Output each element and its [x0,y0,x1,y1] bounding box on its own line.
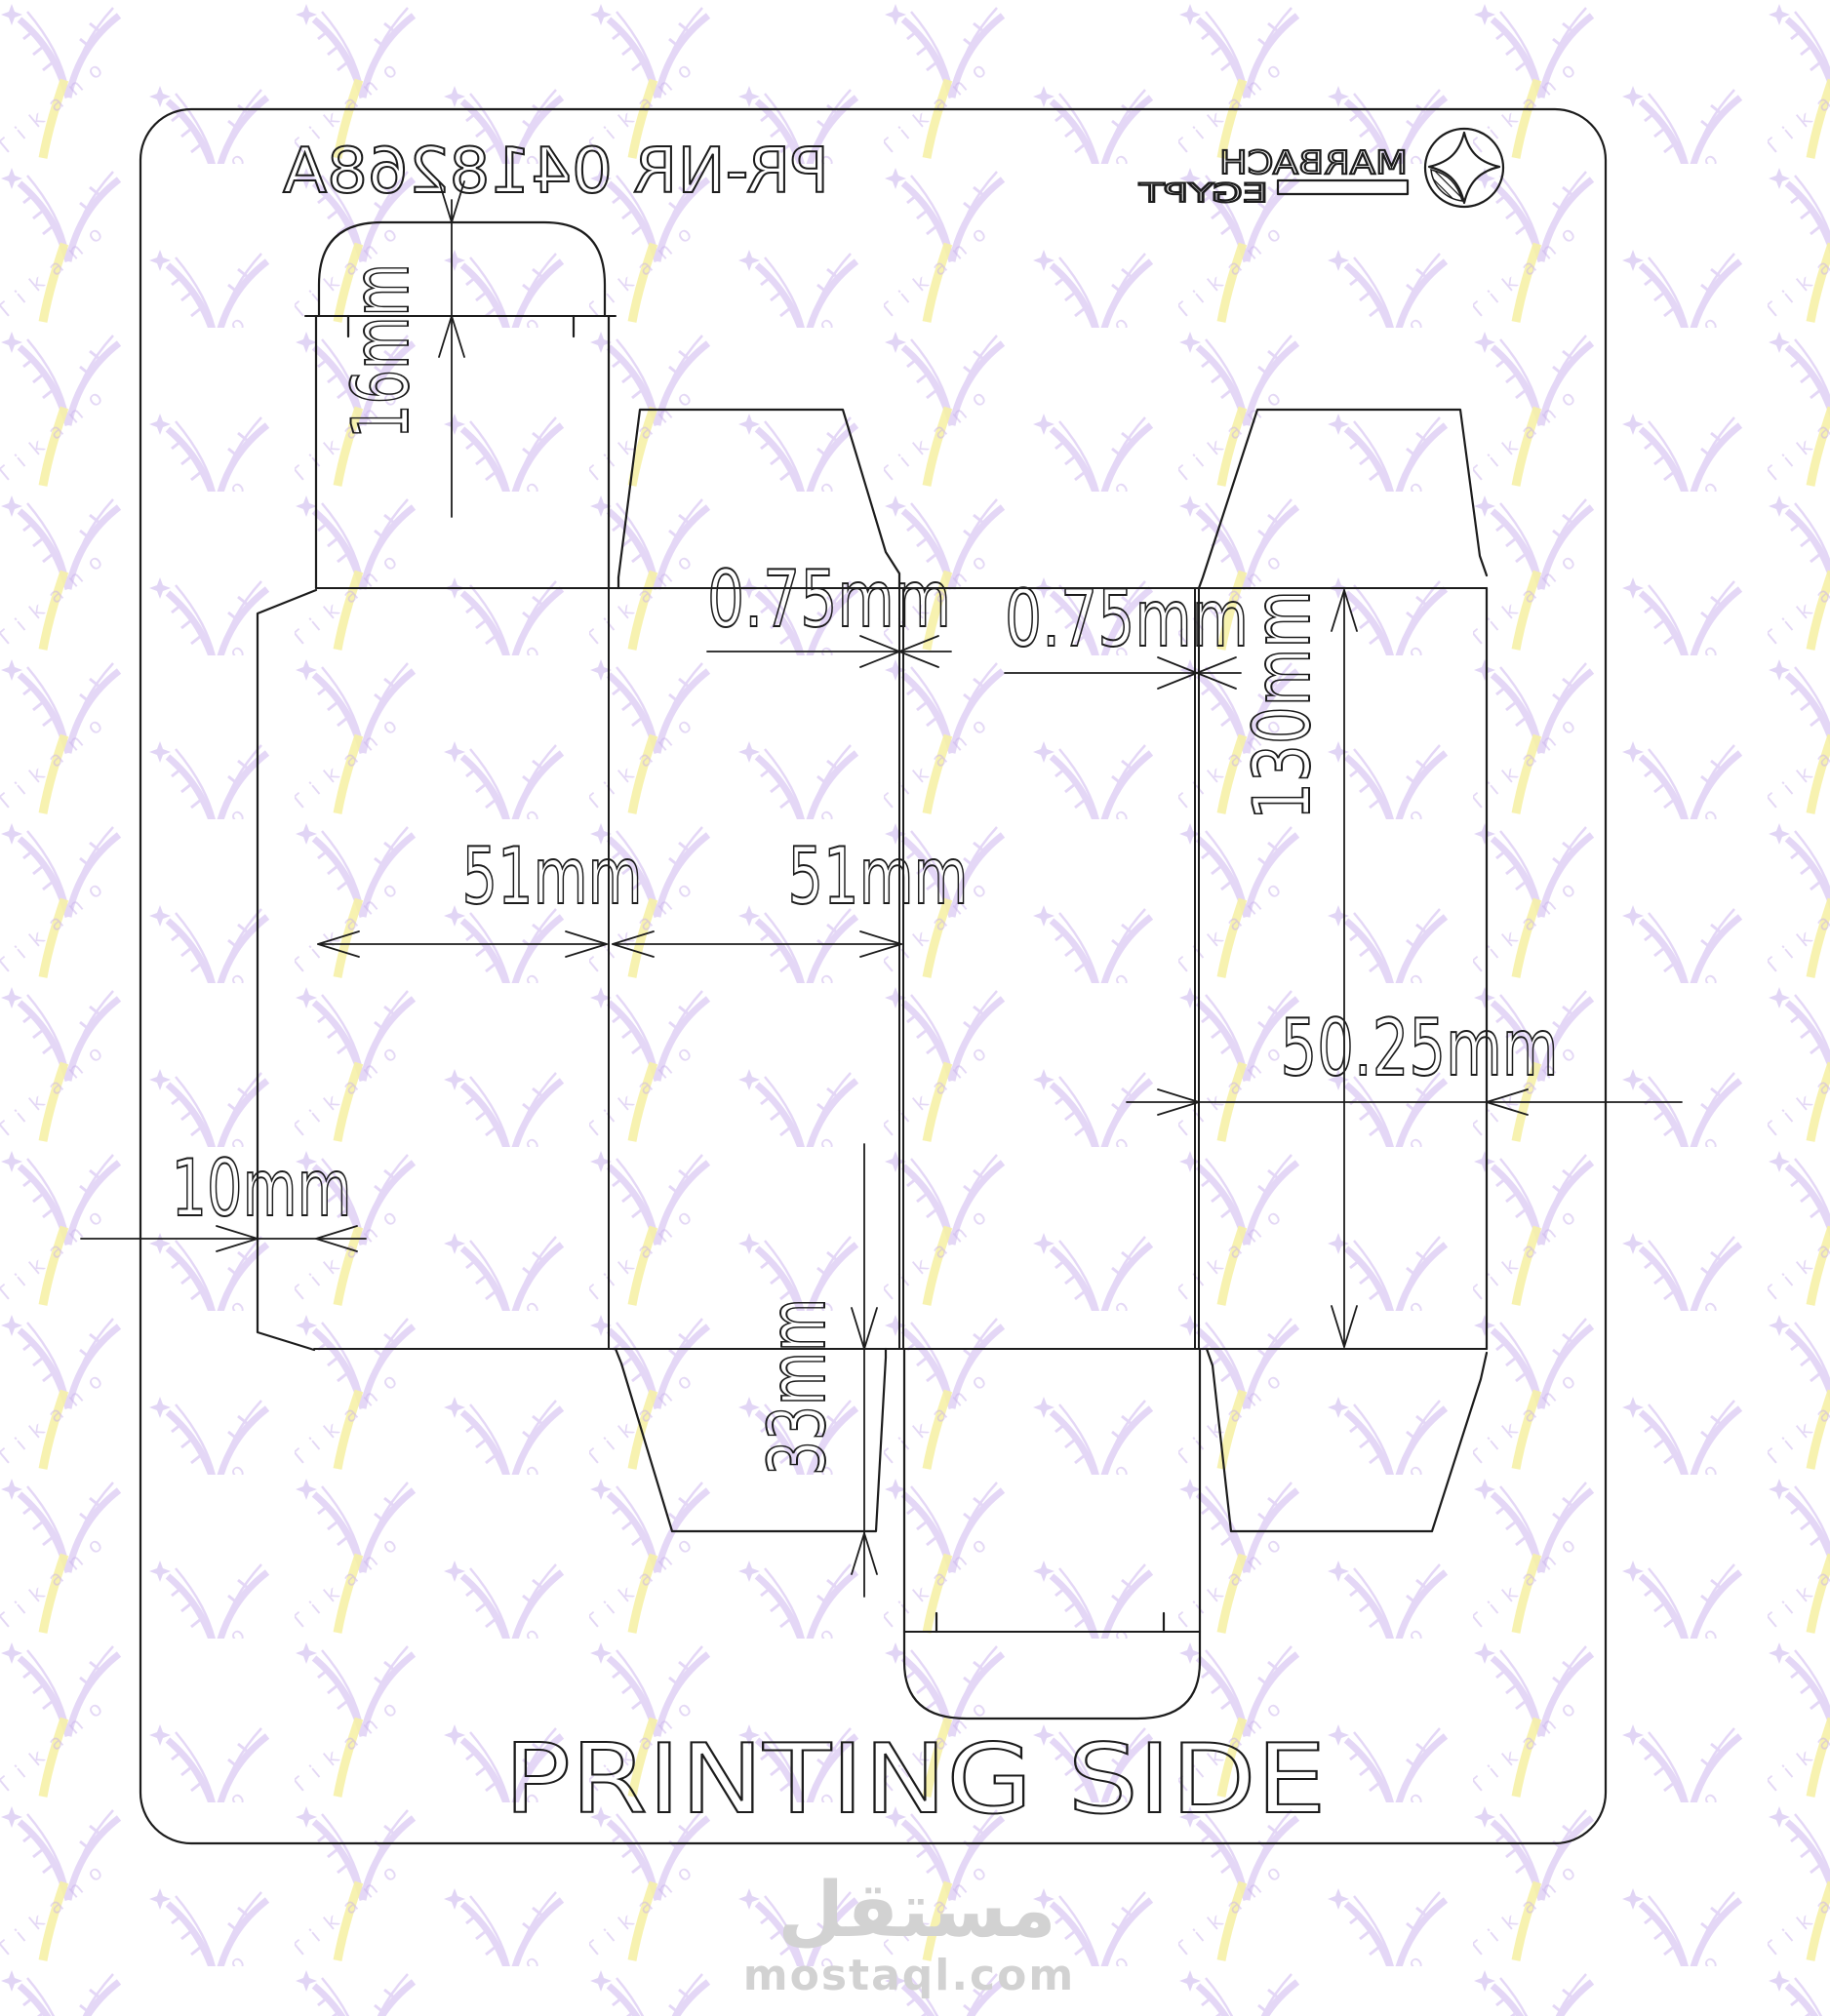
site-name-watermark: مستقل [777,1867,1055,1955]
dim-label-33mm: 33mm [752,1298,843,1476]
dim-label-130mm: 130mm [1237,590,1328,820]
site-watermark: مستقل mostaql.com [743,1867,1075,2000]
dim-label-0.75mm-left: 0.75mm [707,554,951,645]
logo-region-text: EGYPT [1138,178,1268,209]
dim-label-51mm-side: 51mm [788,831,969,922]
site-url-watermark: mostaql.com [743,1951,1075,2000]
dim-label-10mm: 10mm [172,1143,352,1234]
dim-label-0.75mm-right: 0.75mm [1005,573,1249,664]
part-number-text: PR-NR 0418268A [283,136,829,208]
dieline-drawing-svg: Tikano Tikano PR-NR 0418268A MARBACH EGY… [0,0,1830,2016]
dieline-drawing-page: Tikano Tikano PR-NR 0418268A MARBACH EGY… [0,0,1830,2016]
dim-label-50.25mm: 50.25mm [1281,1003,1559,1093]
dim-label-51mm-front: 51mm [462,831,643,922]
logo-brand-text: MARBACH [1219,143,1408,181]
printing-side-text: PRINTING SIDE [504,1724,1327,1836]
footer: PRINTING SIDE [504,1724,1327,1836]
dim-label-16mm: 16mm [336,263,426,439]
part-number-mirrored: PR-NR 0418268A [283,136,829,208]
